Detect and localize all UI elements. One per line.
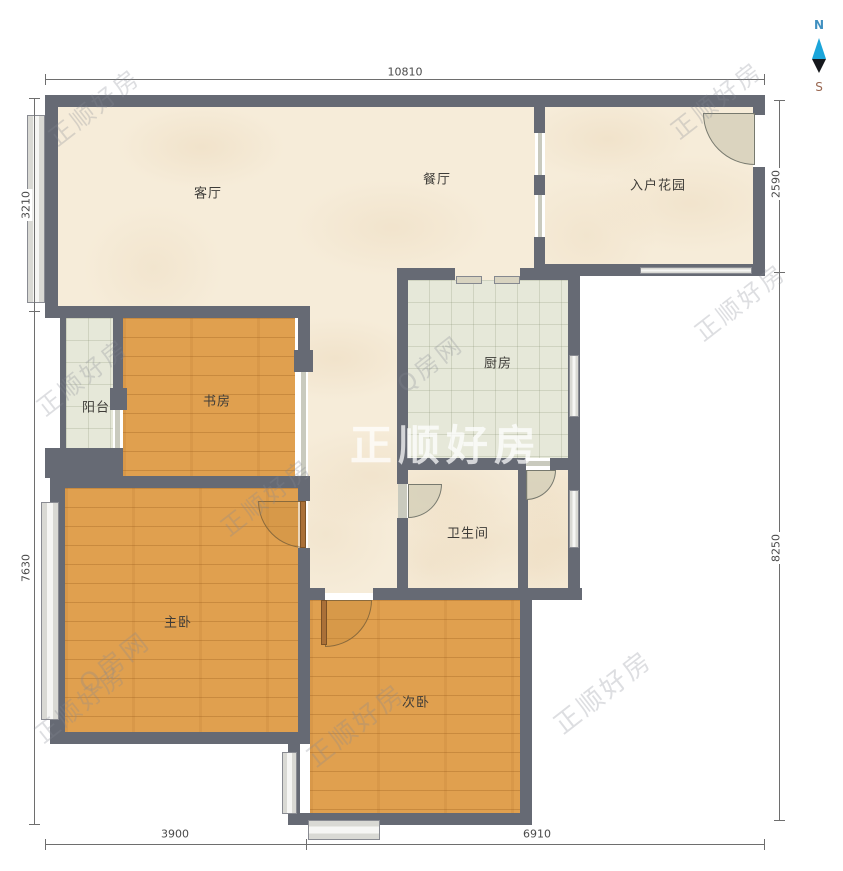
toilet-window: [569, 490, 579, 548]
dining-garden-opening-lower: [538, 195, 542, 237]
entry-garden-window: [640, 267, 752, 274]
room-kitchen-label: 厨房: [484, 353, 512, 372]
wall-garden-right-upper: [753, 95, 765, 115]
wall-bath-left-lower: [397, 518, 408, 588]
dim-line-right: [779, 100, 780, 821]
dim-right-lower-value: 8250: [770, 532, 783, 564]
room-master-bedroom-label: 主卧: [164, 612, 192, 631]
second-bedroom-left-window: [282, 752, 297, 814]
wall-master-second-divider: [298, 600, 310, 744]
floor-plan: 客厅 餐厅 入户花园 阳台 书房 厨房 卫生间 主卧 次卧 10810 3900…: [0, 0, 843, 871]
compass-needle-north-icon: [812, 38, 826, 59]
wall-under-balcony: [45, 448, 123, 478]
compass: N S: [800, 18, 840, 98]
wall-dining-garden-divider-c: [534, 237, 545, 276]
second-bedroom-bottom-window: [308, 820, 380, 840]
wall-study-door-frame: [294, 350, 313, 372]
balcony-door-opening: [115, 410, 120, 448]
dim-tick: [774, 820, 785, 821]
room-bathroom-label: 卫生间: [447, 523, 489, 542]
kitchen-door-frame-right: [494, 276, 520, 284]
wall-living-bottom: [45, 306, 308, 318]
watermark-center: 正顺好房: [350, 412, 542, 473]
compass-north-label: N: [814, 18, 824, 32]
master-bedroom-window: [41, 502, 59, 720]
wall-hall-west-upper: [298, 306, 310, 350]
dim-tick: [306, 839, 307, 850]
wall-dining-garden-divider-b: [534, 175, 545, 195]
kitchen-window: [569, 355, 579, 417]
wall-exterior-east: [568, 264, 580, 600]
dim-tick: [29, 824, 40, 825]
dim-bottom-left-value: 3900: [159, 828, 191, 841]
watermark: 正顺好房: [545, 641, 659, 742]
room-dining-label: 餐厅: [423, 169, 451, 188]
wall-second-top-b: [373, 588, 582, 600]
dim-left-lower-value: 7630: [20, 552, 33, 584]
dim-right-upper-value: 2590: [770, 168, 783, 200]
wall-kitchen-top-a: [397, 268, 455, 280]
kitchen-door-frame-left: [456, 276, 482, 284]
compass-needle-south-icon: [812, 59, 826, 73]
wall-master-bottom: [50, 732, 310, 744]
dim-tick: [774, 100, 785, 101]
bathroom-door-opening: [398, 484, 407, 518]
room-balcony-label: 阳台: [82, 397, 110, 416]
second-bedroom-door-panel: [321, 600, 327, 645]
dim-left-upper-value: 3210: [20, 189, 33, 221]
dim-line-bottom: [45, 844, 765, 845]
room-entry-garden-label: 入户花园: [630, 175, 686, 194]
dim-tick: [29, 311, 40, 312]
wall-dining-garden-divider-a: [534, 95, 545, 133]
dim-tick: [45, 839, 46, 850]
wall-balcony-door-frame: [110, 388, 127, 410]
wall-second-top-a: [298, 588, 325, 600]
compass-south-label: S: [815, 80, 823, 94]
dim-top-value: 10810: [386, 66, 425, 79]
wall-exterior-top: [45, 95, 765, 107]
dim-tick: [45, 74, 46, 85]
dim-bottom-right-value: 6910: [521, 828, 553, 841]
room-study-label: 书房: [203, 391, 231, 410]
dim-tick: [764, 839, 765, 850]
wall-second-right: [520, 588, 532, 825]
master-bedroom-door-panel: [300, 501, 306, 548]
dim-line-top: [45, 79, 765, 80]
room-living-label: 客厅: [194, 183, 222, 202]
dining-garden-opening-upper: [538, 133, 542, 175]
dim-tick: [29, 98, 40, 99]
